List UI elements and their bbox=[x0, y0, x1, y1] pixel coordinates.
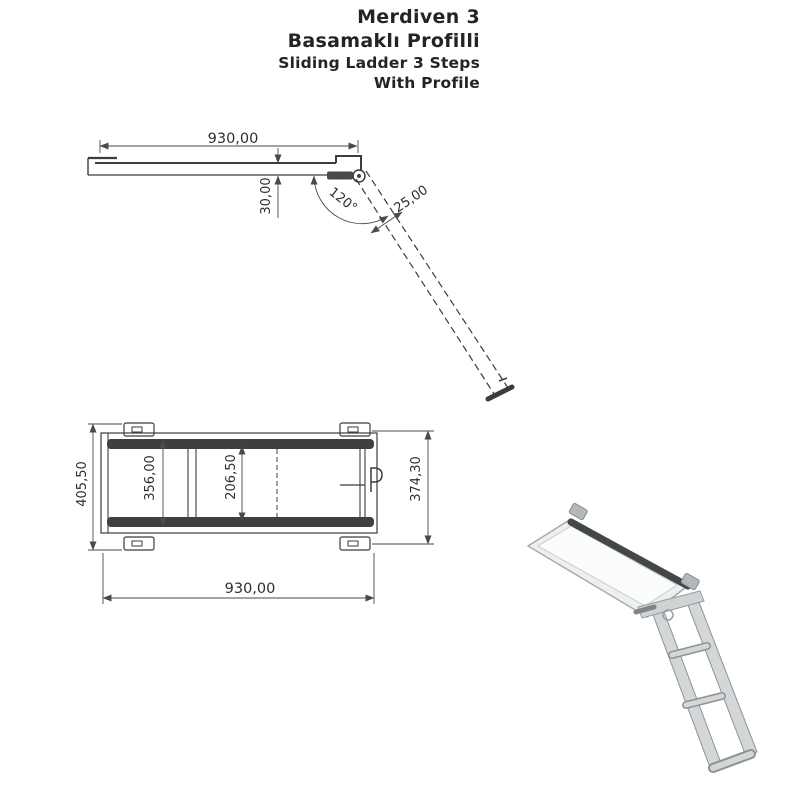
dim-plan-length-label: 930,00 bbox=[225, 581, 276, 597]
side-view-drawing: 930,00 30,00 120° 25,00 bbox=[88, 131, 512, 399]
dim-profile-width: 25,00 bbox=[371, 183, 431, 233]
top-rail-band bbox=[107, 439, 374, 449]
iso-view-render bbox=[528, 503, 757, 770]
bottom-rail-band bbox=[107, 517, 374, 527]
dim-bracket-span-label: 374,30 bbox=[409, 456, 424, 502]
dim-profile-height-label: 30,00 bbox=[259, 177, 274, 214]
technical-drawing: 930,00 30,00 120° 25,00 bbox=[0, 0, 800, 800]
dim-rail-span: 356,00 bbox=[143, 440, 163, 527]
dim-rail-span-label: 356,00 bbox=[143, 455, 158, 501]
plan-view-drawing: 405,50 356,00 206,50 374,30 bbox=[75, 423, 434, 604]
dim-profile-height: 30,00 bbox=[259, 148, 278, 218]
pivot-bracket bbox=[327, 156, 365, 182]
dim-overall-width-label: 405,50 bbox=[75, 461, 90, 507]
iso-mounting-tab-left bbox=[569, 503, 588, 521]
mounting-bracket-top-right bbox=[340, 423, 370, 436]
ladder-rung-top bbox=[188, 449, 196, 517]
dim-plan-length: 930,00 bbox=[103, 553, 374, 604]
slider-end bbox=[360, 449, 365, 517]
extended-ladder-phantom bbox=[356, 171, 512, 399]
mounting-bracket-top-left bbox=[124, 423, 154, 436]
pull-handle bbox=[340, 468, 382, 492]
dim-inner-width: 206,50 bbox=[224, 446, 242, 521]
dim-side-length: 930,00 bbox=[100, 131, 358, 153]
dim-opening-angle: 120° bbox=[314, 176, 388, 224]
dim-side-length-label: 930,00 bbox=[208, 131, 259, 147]
dim-bracket-span: 374,30 bbox=[372, 431, 434, 544]
profile-bar bbox=[88, 158, 356, 175]
mounting-bracket-bottom-right bbox=[340, 537, 370, 550]
mounting-bracket-bottom-left bbox=[124, 537, 154, 550]
dim-inner-width-label: 206,50 bbox=[224, 454, 239, 500]
drawing-sheet: Merdiven 3 Basamaklı Profilli Sliding La… bbox=[0, 0, 800, 800]
dim-profile-width-label: 25,00 bbox=[392, 183, 431, 216]
dim-opening-angle-label: 120° bbox=[326, 185, 360, 216]
